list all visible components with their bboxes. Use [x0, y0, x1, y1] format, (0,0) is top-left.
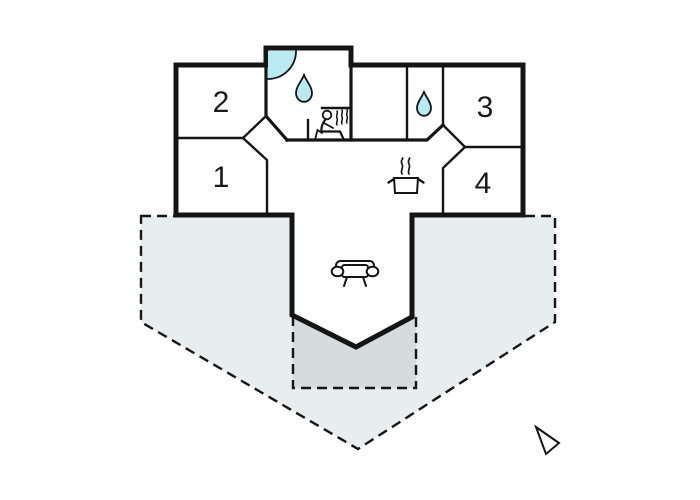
room-2-label: 2 — [213, 86, 230, 119]
room-3-label: 3 — [477, 91, 494, 124]
floor-plan-page: 1 2 3 4 — [0, 0, 700, 500]
room-1-label: 1 — [213, 161, 230, 194]
room-4-label: 4 — [475, 167, 492, 200]
north-arrow-icon — [536, 427, 559, 454]
floor-plan-canvas: 1 2 3 4 — [0, 0, 700, 500]
